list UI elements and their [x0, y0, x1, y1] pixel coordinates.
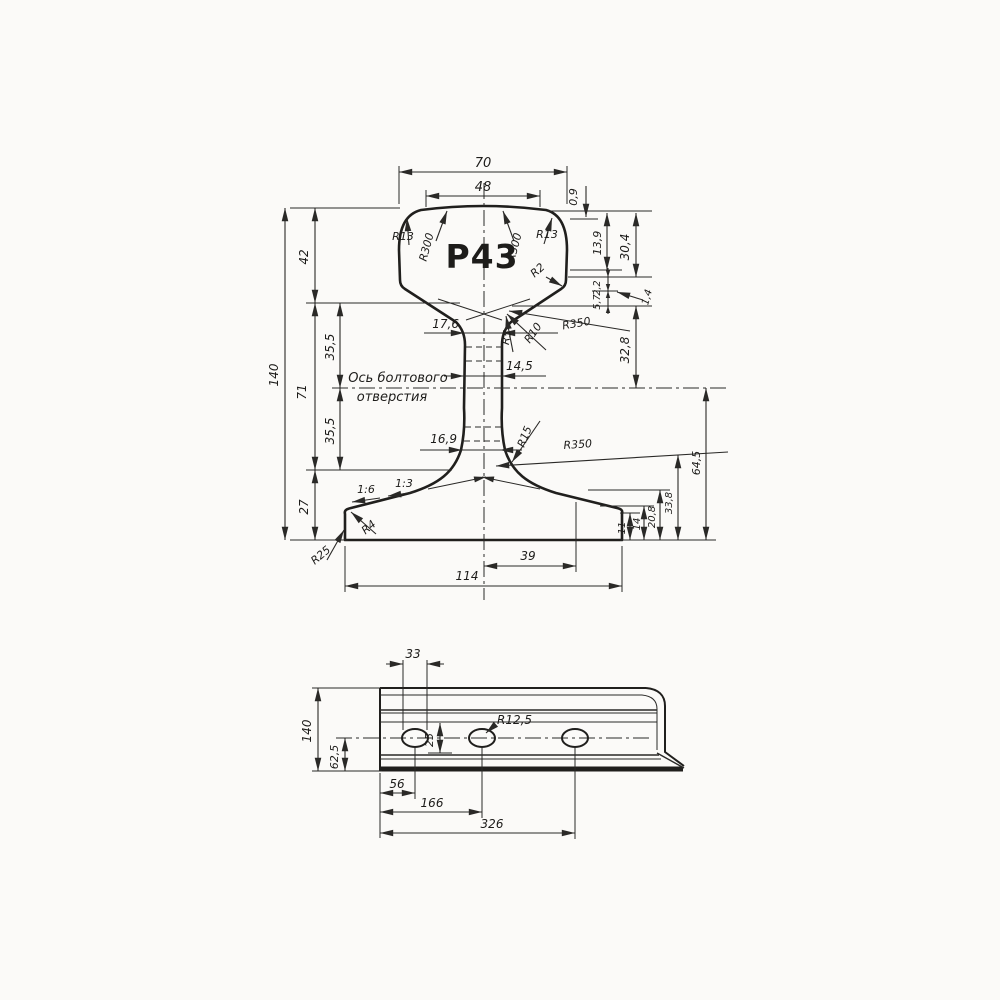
slope-1-6: 1:6 [357, 483, 375, 496]
dim-64-5: 64,5 [690, 451, 703, 476]
dim-foot-20-8: 20,8 [647, 506, 658, 528]
dim-rail-height: 140 [267, 363, 281, 386]
dim-web-bottom: 16,9 [430, 432, 457, 446]
dim-head-height: 30,4 [618, 234, 632, 261]
radius-r15: R15 [515, 424, 535, 449]
radius-r350-lower: R350 [563, 437, 592, 452]
dim-39: 39 [520, 549, 535, 563]
radius-r350-upper: R350 [561, 315, 591, 333]
dim-foot-zone: 27 [297, 499, 311, 515]
dim-hole3-offset: 326 [481, 817, 504, 831]
side-view-outline [380, 688, 684, 771]
dim-35-5-lower: 35,5 [323, 418, 337, 445]
dim-2-2: 2,2 [592, 280, 603, 295]
bolt-axis-caption-1: Ось болтового [348, 371, 447, 386]
dim-side-height-140: 140 [300, 719, 314, 742]
radius-r300-left: R300 [417, 232, 437, 263]
rail-side-view: 33 140 62,5 25 R12,5 56 166 326 [300, 647, 684, 839]
dim-foot-33-8: 33,8 [664, 492, 675, 514]
bolt-axis-caption-2: отверстия [357, 390, 428, 405]
radius-r13-right: R13 [536, 228, 558, 241]
dim-1-4: 1,4 [640, 288, 655, 306]
technical-drawing: 70 48 0,9 13,9 30,4 R13 R300 R300 R13 P4… [0, 0, 1000, 1000]
dim-crown-drop: 0,9 [567, 188, 580, 206]
dim-hole2-offset: 166 [421, 796, 444, 810]
dim-web-thickness: 14,5 [506, 359, 533, 373]
radius-r2: R2 [528, 261, 548, 280]
dim-5-7: 5,7 [592, 294, 603, 309]
dim-foot-edge-11: 11 [617, 522, 628, 535]
dim-hole1-offset: 56 [389, 777, 405, 791]
dim-head-top-width: 70 [475, 156, 492, 171]
radius-r5: R5 [499, 329, 514, 346]
dim-13-9: 13,9 [591, 231, 604, 256]
slope-1-3: 1:3 [395, 477, 413, 490]
side-dimension-lines [318, 664, 575, 833]
dim-head-inner-width: 48 [475, 180, 492, 195]
dim-hole-slot-33: 33 [405, 647, 420, 661]
dim-hole-height-25: 25 [423, 733, 436, 747]
drawing-canvas: 70 48 0,9 13,9 30,4 R13 R300 R300 R13 P4… [0, 0, 1000, 1000]
radius-r13-left: R13 [392, 230, 414, 243]
radius-hole-r12-5: R12,5 [497, 713, 532, 727]
rail-cross-section: 70 48 0,9 13,9 30,4 R13 R300 R300 R13 P4… [267, 156, 730, 600]
rail-type-label: P43 [445, 237, 518, 276]
dim-32-8: 32,8 [618, 336, 632, 363]
dim-foot-width: 114 [456, 569, 479, 583]
dim-35-5-upper: 35,5 [323, 334, 337, 361]
web-dashed-lines [464, 347, 502, 441]
dim-web-zone: 71 [295, 384, 309, 399]
radius-r25: R25 [308, 543, 333, 567]
dim-foot-14: 14 [632, 518, 643, 531]
dim-head-zone: 42 [297, 249, 311, 264]
dim-web-top: 17,6 [432, 317, 459, 331]
dim-bolt-axis-height: 62,5 [328, 745, 341, 770]
